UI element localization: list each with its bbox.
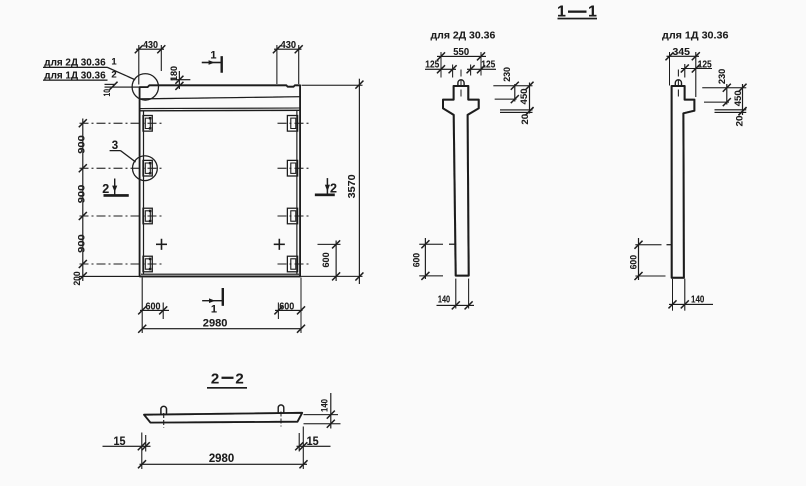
svg-text:20: 20: [520, 114, 531, 125]
svg-text:200: 200: [72, 272, 83, 286]
svg-text:125: 125: [425, 60, 439, 71]
svg-text:2: 2: [211, 370, 219, 387]
svg-text:для 2Д 30.36: для 2Д 30.36: [431, 31, 496, 42]
svg-text:2980: 2980: [209, 451, 235, 465]
svg-text:900: 900: [77, 234, 88, 253]
svg-text:430: 430: [143, 39, 158, 51]
svg-text:900: 900: [77, 185, 88, 204]
svg-text:450: 450: [733, 90, 744, 106]
svg-text:2: 2: [235, 370, 243, 387]
svg-text:15: 15: [307, 436, 320, 448]
svg-text:345: 345: [672, 46, 690, 58]
svg-text:140: 140: [320, 399, 331, 412]
svg-text:1: 1: [111, 56, 117, 67]
svg-text:для 2Д 30.36: для 2Д 30.36: [44, 57, 106, 68]
svg-text:для 1Д 30.36: для 1Д 30.36: [662, 31, 729, 42]
svg-text:450: 450: [519, 88, 530, 104]
svg-text:230: 230: [502, 67, 513, 82]
svg-text:125: 125: [698, 60, 712, 71]
svg-text:2: 2: [102, 182, 109, 196]
svg-text:900: 900: [77, 135, 88, 154]
svg-text:15: 15: [114, 436, 127, 448]
svg-text:180: 180: [169, 66, 180, 81]
svg-text:2: 2: [330, 181, 337, 195]
svg-text:20: 20: [735, 116, 746, 127]
svg-text:10: 10: [102, 89, 113, 97]
svg-text:1: 1: [211, 303, 217, 315]
svg-text:140: 140: [438, 294, 451, 305]
svg-text:1: 1: [210, 49, 216, 61]
svg-text:600: 600: [411, 253, 422, 267]
svg-text:140: 140: [691, 294, 705, 305]
svg-text:600: 600: [279, 300, 294, 312]
svg-text:3570: 3570: [346, 174, 358, 198]
svg-text:550: 550: [453, 46, 469, 58]
svg-text:2: 2: [111, 69, 116, 80]
svg-text:600: 600: [321, 252, 331, 267]
svg-text:600: 600: [629, 255, 640, 269]
svg-text:1: 1: [588, 3, 597, 20]
svg-text:430: 430: [281, 39, 297, 51]
svg-text:125: 125: [481, 60, 495, 71]
svg-text:1: 1: [557, 3, 566, 20]
svg-text:2980: 2980: [203, 317, 228, 329]
svg-text:230: 230: [717, 69, 728, 85]
svg-text:600: 600: [146, 300, 161, 312]
